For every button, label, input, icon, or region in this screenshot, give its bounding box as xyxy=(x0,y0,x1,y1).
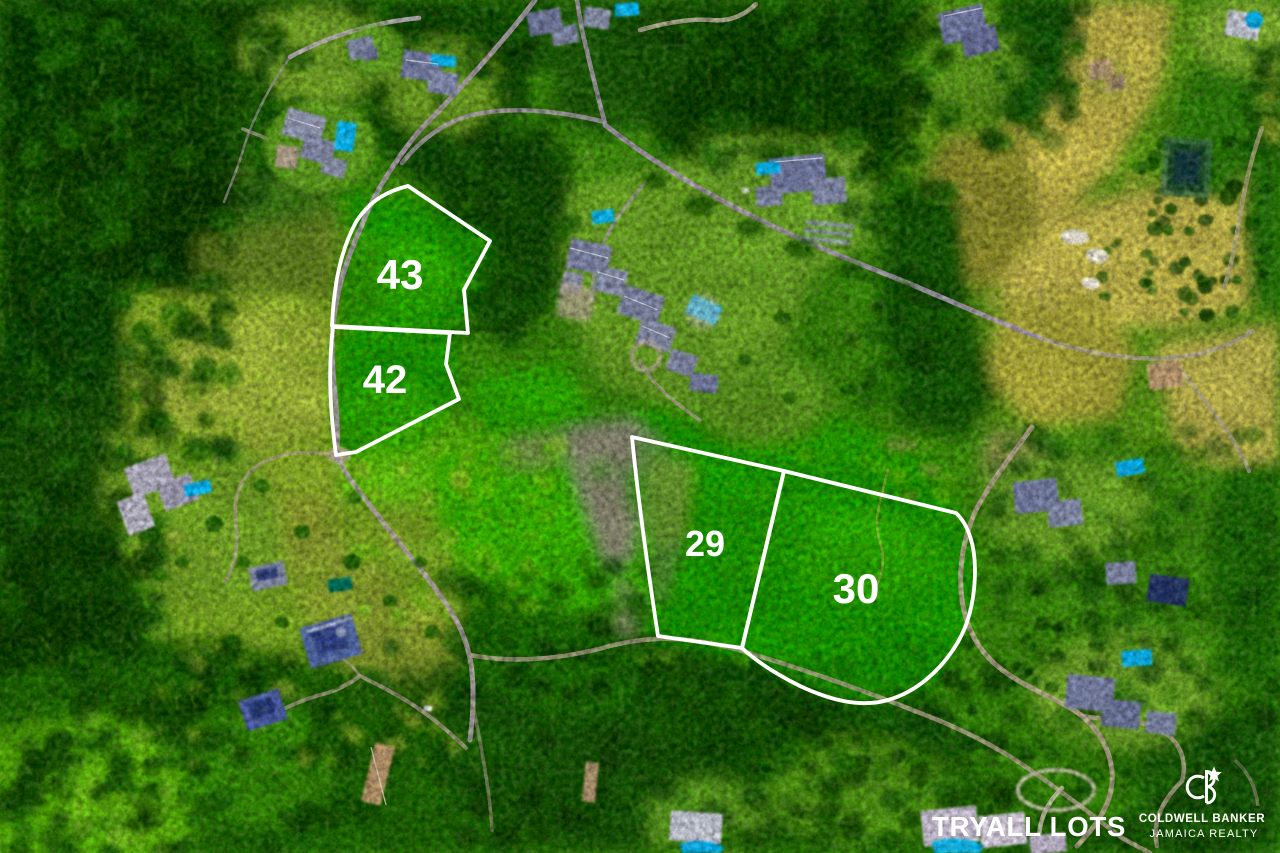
svg-text:42: 42 xyxy=(363,358,408,402)
svg-text:TRYALL LOTS: TRYALL LOTS xyxy=(932,811,1126,842)
svg-text:30: 30 xyxy=(833,565,880,612)
svg-text:COLDWELL BANKER: COLDWELL BANKER xyxy=(1139,813,1265,825)
svg-text:JAMAICA REALTY: JAMAICA REALTY xyxy=(1150,828,1259,840)
svg-text:29: 29 xyxy=(685,523,725,564)
svg-text:43: 43 xyxy=(377,251,424,298)
